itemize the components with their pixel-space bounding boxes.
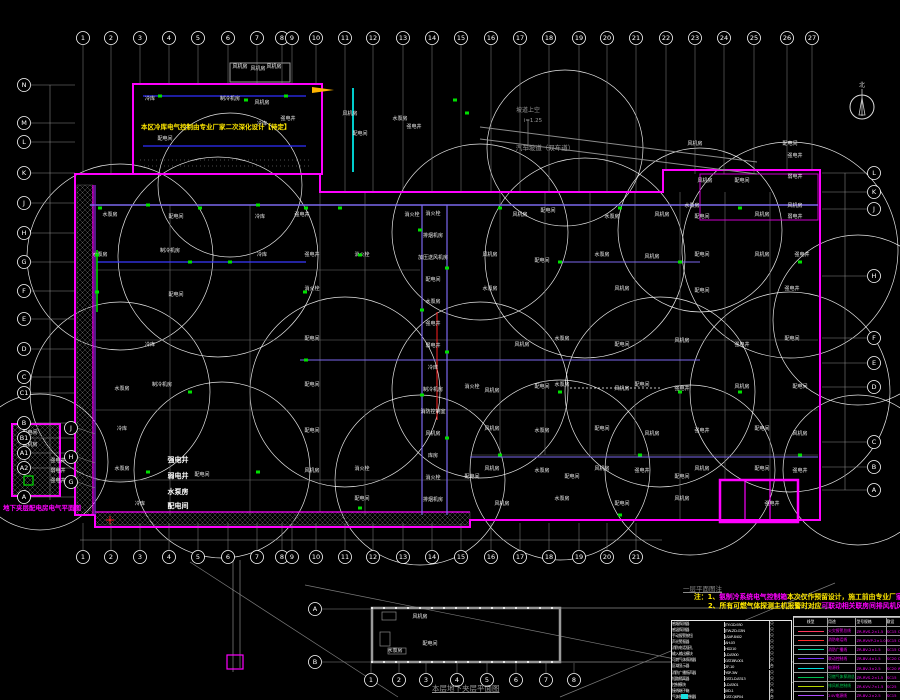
schedule-cell: 台 [769,694,788,700]
legend-cell: SC20 CC [886,655,900,663]
svg-text:风机房: 风机房 [787,202,802,209]
svg-text:i=1.25: i=1.25 [524,118,543,124]
svg-text:坡道上空: 坡道上空 [516,106,540,114]
svg-text:B1: B1 [20,434,29,442]
legend-row: 排风机控制线ZR-KVV-7×1.5SC25 [794,681,900,690]
schedule-cell: HD210 [724,646,769,651]
svg-text:风机房: 风机房 [792,430,807,437]
schedule-cell: J-SAP-8402 [724,634,769,639]
svg-text:配电间: 配电间 [694,213,709,220]
svg-text:风机房: 风机房 [754,251,769,258]
note-segment: 可联动相关联房间排风机风机开启 [821,602,900,610]
legend-row: 24V电源线ZR-BV-2×2.5SC15 [794,691,900,700]
svg-text:5: 5 [196,553,200,561]
svg-text:制冷机房: 制冷机房 [160,247,180,254]
svg-text:配电间: 配电间 [422,640,437,647]
left-detail-caption: 地下夹层配电房电气平面图 [3,502,81,512]
legend-row: 消防广播线ZR-BV-2×1.5SC15 CC [794,645,900,654]
svg-text:B: B [313,658,317,666]
svg-text:风机房: 风机房 [512,211,527,218]
svg-text:风机房: 风机房 [494,500,509,507]
svg-text:风机房: 风机房 [694,465,709,472]
svg-text:配电间: 配电间 [694,287,709,294]
svg-text:H: H [22,229,27,237]
svg-text:风机房: 风机房 [484,387,499,394]
svg-text:配电间: 配电间 [754,425,769,432]
legend-cell: ZR-BV-4×1.5 [855,655,885,663]
svg-text:消火栓: 消火栓 [464,383,479,390]
device-symbols [95,95,802,517]
svg-text:风机房: 风机房 [674,337,689,344]
legend-line-sample [794,655,827,663]
svg-text:A: A [872,486,877,494]
svg-text:9: 9 [290,553,294,561]
svg-text:强电井: 强电井 [168,455,189,464]
svg-text:A1: A1 [20,449,29,457]
svg-text:强电井: 强电井 [794,251,809,258]
legend-cell: SC25 [886,682,900,690]
annex-note-text: 本区冷库电气控制由专业厂家二次深化设计【待定】 [141,121,291,131]
note-segment: 2、所有可燃气体探测主机报警时对应 [708,602,821,610]
svg-text:冷库: 冷库 [257,251,267,258]
svg-text:冷库: 冷库 [428,364,438,371]
svg-text:配电间: 配电间 [464,473,479,480]
svg-text:配电间: 配电间 [304,427,319,434]
legend-cell: 24V电源线 [827,692,855,700]
svg-text:K: K [22,169,27,177]
svg-text:配电间: 配电间 [792,383,807,390]
svg-text:4: 4 [167,34,171,42]
legend-cell: SC15 CC [886,636,900,644]
svg-text:配电间: 配电间 [168,213,183,220]
svg-text:水泵房: 水泵房 [102,211,117,218]
svg-text:配电间: 配电间 [564,473,579,480]
svg-text:配电间: 配电间 [168,501,189,510]
svg-text:9: 9 [290,34,294,42]
svg-text:B: B [872,463,876,471]
svg-text:26: 26 [783,34,791,42]
svg-text:消火栓: 消火栓 [404,211,419,218]
svg-text:13: 13 [399,553,407,561]
svg-text:20: 20 [603,34,611,42]
svg-text:C: C [22,373,27,381]
svg-text:D: D [21,345,26,353]
svg-text:10: 10 [312,553,320,561]
legend-row: 联动控制线ZR-BV-4×1.5SC20 CC [794,654,900,663]
schedule-cell: LD-8301 [724,682,769,687]
svg-text:8: 8 [572,676,576,684]
svg-text:冷库: 冷库 [255,213,265,220]
svg-text:6: 6 [226,34,230,42]
svg-text:冷库: 冷库 [145,341,155,348]
svg-text:强电井: 强电井 [294,211,309,218]
legend-line-sample [794,682,827,690]
svg-text:配电间: 配电间 [614,341,629,348]
svg-text:强电井: 强电井 [50,457,65,464]
svg-text:水泵房: 水泵房 [114,465,129,472]
svg-text:消火栓: 消火栓 [425,474,440,481]
svg-text:强电井: 强电井 [784,285,799,292]
schedule-cell: JXD-1 [724,688,769,693]
svg-text:冷库: 冷库 [145,95,155,102]
svg-text:2: 2 [109,553,113,561]
legend-cell: ZR-BV-2×1.5 [855,646,885,654]
svg-text:强电井: 强电井 [787,152,802,159]
svg-text:6: 6 [226,553,230,561]
legend-line-sample [794,664,827,672]
svg-text:排烟机房: 排烟机房 [423,232,443,239]
svg-text:水泵房: 水泵房 [482,285,497,292]
svg-text:风机房: 风机房 [754,211,769,218]
legend-cell: 消防电话线 [827,636,855,644]
legend-cell: 火灾报警总线 [827,627,855,635]
legend-row: 可燃气体探测总线ZR-RVS-2×1.5SC15 [794,672,900,681]
svg-text:3: 3 [138,34,142,42]
svg-text:消火栓: 消火栓 [425,210,440,217]
svg-text:H: H [872,272,877,280]
svg-text:配电间: 配电间 [674,473,689,480]
svg-text:F: F [22,287,26,295]
svg-text:F: F [872,334,876,342]
svg-text:风机房: 风机房 [412,613,427,620]
svg-text:风机房: 风机房 [654,211,669,218]
svg-text:弱电井: 弱电井 [787,213,802,220]
svg-text:E: E [22,315,26,323]
legend-cell: 消防广播线 [827,646,855,654]
svg-text:风机房: 风机房 [614,385,629,392]
svg-text:1: 1 [369,676,373,684]
svg-text:水泵房: 水泵房 [554,381,569,388]
north-arrow: 北 [850,81,874,119]
svg-text:7: 7 [255,553,259,561]
svg-text:配电间: 配电间 [352,130,367,137]
svg-text:弱电井: 弱电井 [787,173,802,180]
legend-line-sample [794,627,827,635]
legend-line-sample [794,673,827,681]
schedule-cell: 气体报警控制器 [672,694,724,700]
svg-text:配电间: 配电间 [734,177,749,184]
svg-text:12: 12 [369,34,377,42]
svg-text:消防控制室: 消防控制室 [420,408,445,415]
svg-text:25: 25 [750,34,758,42]
legend-cell: ZR-RVS-2×1.5 [855,627,885,635]
svg-text:风机房: 风机房 [734,383,749,390]
svg-text:风机房: 风机房 [484,425,499,432]
svg-text:风机房: 风机房 [232,63,247,70]
note-line-2: 2、所有可燃气体探测主机报警时对应可联动相关联房间排风机风机开启 [708,600,900,610]
svg-text:强电井: 强电井 [694,427,709,434]
svg-text:配电间: 配电间 [754,465,769,472]
svg-text:21: 21 [632,553,640,561]
hatch-areas [13,185,470,525]
schedule-highlight-cell [681,694,688,699]
svg-text:13: 13 [399,34,407,42]
svg-text:强电井: 强电井 [634,467,649,474]
svg-text:风机房: 风机房 [644,430,659,437]
svg-text:7: 7 [544,676,548,684]
svg-text:配电间: 配电间 [534,383,549,390]
svg-text:J: J [22,199,25,207]
svg-text:水泵房: 水泵房 [534,467,549,474]
svg-text:配电间: 配电间 [594,425,609,432]
legend-row: 消防电话线ZR-RVVP-2×1.0SC15 CC [794,635,900,644]
svg-text:L: L [872,169,876,177]
svg-text:16: 16 [487,34,495,42]
svg-text:27: 27 [808,34,816,42]
svg-text:风机房: 风机房 [484,465,499,472]
svg-text:3: 3 [424,676,428,684]
svg-text:风机房: 风机房 [614,285,629,292]
svg-text:4: 4 [167,553,171,561]
svg-text:强电井: 强电井 [304,251,319,258]
svg-text:配电间: 配电间 [694,251,709,258]
svg-text:弱电井: 弱电井 [425,342,440,349]
svg-text:配电间: 配电间 [168,291,183,298]
svg-text:汽车坡道（双车道）: 汽车坡道（双车道） [516,143,575,152]
svg-text:G: G [68,478,73,486]
svg-text:制冷机房: 制冷机房 [152,381,172,388]
svg-text:配电间: 配电间 [304,335,319,342]
schedule-row: 气体报警控制器GST-QKP04台 [672,694,791,700]
svg-text:风机房: 风机房 [514,341,529,348]
svg-text:23: 23 [691,34,699,42]
legend-line-sample [794,692,827,700]
svg-text:N: N [22,81,27,89]
legend-cell: 排风机控制线 [827,682,855,690]
svg-text:配电间: 配电间 [304,381,319,388]
cad-viewport[interactable]: 冷库制冷机房风机房配电间冷库强电井风机房风机房风机房风机房水泵房强电井配电间风机… [0,0,900,700]
svg-text:21: 21 [632,34,640,42]
svg-text:10: 10 [312,34,320,42]
legend-header-cell: 线型 [794,618,827,626]
svg-text:配电间: 配电间 [782,140,797,147]
legend-cell: 可燃气体探测总线 [827,673,855,681]
svg-text:风机房: 风机房 [342,110,357,117]
svg-text:水泵房: 水泵房 [114,385,129,392]
svg-text:J: J [69,424,72,432]
svg-text:配电间: 配电间 [540,207,555,214]
svg-text:制冷机房: 制冷机房 [220,95,240,102]
svg-text:风机房: 风机房 [697,177,712,184]
device-labels: 冷库制冷机房风机房配电间冷库强电井风机房风机房风机房风机房水泵房强电井配电间风机… [22,63,809,654]
legend-header-row: 线型用途型号规格敷设 [794,617,900,626]
svg-text:排烟机房: 排烟机房 [423,496,443,503]
svg-text:G: G [21,258,26,266]
schedule-cell: JTY-GD-930 [724,622,769,627]
legend-header-cell: 敷设 [886,618,900,626]
svg-text:水泵房: 水泵房 [554,495,569,502]
svg-text:A: A [313,605,318,613]
svg-text:配电间: 配电间 [614,500,629,507]
svg-text:3: 3 [138,553,142,561]
svg-text:风机房: 风机房 [250,65,265,72]
svg-text:水泵房: 水泵房 [392,115,407,122]
svg-text:11: 11 [341,553,349,561]
svg-text:14: 14 [428,34,436,42]
schedule-cell: JTW-ZD-G3N [724,628,769,633]
legend-line-sample [794,646,827,654]
svg-text:加压送风机房: 加压送风机房 [418,254,448,261]
svg-text:5: 5 [196,34,200,42]
svg-text:18: 18 [545,553,553,561]
svg-text:水泵房: 水泵房 [684,202,699,209]
legend-cell: 电源线 [827,664,855,672]
svg-text:水泵房: 水泵房 [604,213,619,220]
svg-text:1: 1 [81,34,85,42]
svg-text:24: 24 [720,34,728,42]
svg-text:风机房: 风机房 [482,251,497,258]
legend-cell: ZR-RVS-2×1.5 [855,673,885,681]
legend-cell: SC15 [886,692,900,700]
legend-header-cell: 用途 [827,618,855,626]
legend-row: 火灾报警总线ZR-RVS-2×1.5SC15 CC [794,626,900,635]
svg-text:配电间: 配电间 [534,257,549,264]
svg-text:19: 19 [575,553,583,561]
svg-text:1: 1 [81,553,85,561]
schedule-cell: GST-QKP04 [724,694,769,699]
schedule-cell: ZF-10 [724,664,769,669]
svg-text:水泵房: 水泵房 [554,335,569,342]
svg-text:水泵房: 水泵房 [92,251,107,258]
svg-text:水泵房: 水泵房 [425,298,440,305]
legend-header-cell: 型号规格 [855,618,885,626]
svg-text:冷库: 冷库 [117,425,127,432]
device-schedule-table: 感烟探测器JTY-GD-930只感温探测器JTW-ZD-G3N只手动报警按钮J-… [671,620,792,700]
svg-text:15: 15 [457,553,465,561]
svg-text:14: 14 [428,553,436,561]
svg-text:8: 8 [280,553,284,561]
svg-text:L: L [22,138,26,146]
svg-text:2: 2 [397,676,401,684]
svg-text:K: K [872,188,877,196]
svg-text:M: M [21,119,27,127]
svg-text:17: 17 [516,34,524,42]
svg-text:6: 6 [514,676,518,684]
legend-cell: SC15 [886,673,900,681]
svg-text:消火栓: 消火栓 [354,465,369,472]
svg-text:制冷机房: 制冷机房 [423,386,443,393]
coverage-circles [0,70,900,565]
svg-text:强电井: 强电井 [734,341,749,348]
svg-text:风机房: 风机房 [266,63,281,70]
svg-text:18: 18 [545,34,553,42]
svg-text:配电间: 配电间 [157,135,172,142]
ramp-annotations: 坡道上空i=1.25汽车坡道（双车道） [516,106,575,152]
svg-text:弱电井: 弱电井 [168,471,189,480]
svg-text:强电井: 强电井 [792,467,807,474]
svg-text:强电井: 强电井 [425,320,440,327]
svg-text:强电井: 强电井 [50,477,65,484]
svg-text:15: 15 [457,34,465,42]
schedule-cell: YSP-3W [724,670,769,675]
svg-text:C: C [872,438,877,446]
legend-cell: SC20 WC [886,664,900,672]
svg-text:库房: 库房 [428,452,438,459]
svg-text:风机房: 风机房 [644,253,659,260]
svg-text:风机房: 风机房 [425,430,440,437]
svg-text:北: 北 [859,81,865,89]
legend-cell: ZR-KVV-7×1.5 [855,682,885,690]
svg-text:22: 22 [662,34,670,42]
svg-text:强电井: 强电井 [764,500,779,507]
svg-text:配电间: 配电间 [425,276,440,283]
svg-text:水泵房: 水泵房 [594,251,609,258]
svg-text:配电间: 配电间 [354,495,369,502]
svg-text:11: 11 [341,34,349,42]
svg-text:配电间: 配电间 [634,381,649,388]
svg-text:A: A [22,493,27,501]
legend-cell: ZR-BV-2×2.5 [855,692,885,700]
svg-text:J: J [872,205,875,213]
schedule-cell: AH-03 [724,640,769,645]
svg-text:19: 19 [575,34,583,42]
schedule-cell: GST-LD-8313 [724,676,769,681]
schedule-cell: LD-8300 [724,652,769,657]
subplan-title: 本层地下夹层平面图 [432,683,500,694]
svg-text:8: 8 [280,34,284,42]
legend-row: 电源线ZR-BV-3×2.5SC20 WC [794,663,900,672]
svg-text:B: B [22,419,26,427]
svg-text:12: 12 [369,553,377,561]
svg-text:17: 17 [516,553,524,561]
svg-text:风机房: 风机房 [674,495,689,502]
svg-text:7: 7 [255,34,259,42]
svg-text:E: E [872,359,876,367]
svg-text:A2: A2 [20,464,29,472]
svg-text:2: 2 [109,34,113,42]
svg-text:H: H [69,453,74,461]
svg-text:16: 16 [487,553,495,561]
svg-text:C1: C1 [20,389,29,397]
grid-bubbles: 1234567891011121314151617181920212223242… [18,32,881,564]
svg-text:风机房: 风机房 [304,467,319,474]
legend-cell: ZR-BV-3×2.5 [855,664,885,672]
legend-cell: ZR-RVVP-2×1.0 [855,636,885,644]
svg-text:配电间: 配电间 [784,335,799,342]
svg-text:强电井: 强电井 [406,123,421,130]
schedule-cell: GST-BR-001 [724,658,769,663]
svg-text:水泵房: 水泵房 [168,487,189,496]
svg-text:D: D [871,383,876,391]
svg-text:风机房: 风机房 [254,99,269,106]
svg-text:20: 20 [603,553,611,561]
svg-text:风机房: 风机房 [594,465,609,472]
legend-cell: SC15 CC [886,646,900,654]
legend-cell: SC15 CC [886,627,900,635]
svg-text:冷库: 冷库 [135,500,145,507]
legend-cell: 联动控制线 [827,655,855,663]
svg-text:配电间: 配电间 [194,471,209,478]
legend-line-sample [794,636,827,644]
svg-text:水泵房: 水泵房 [534,427,549,434]
legend-table: 线型用途型号规格敷设火灾报警总线ZR-RVS-2×1.5SC15 CC消防电话线… [793,616,900,700]
